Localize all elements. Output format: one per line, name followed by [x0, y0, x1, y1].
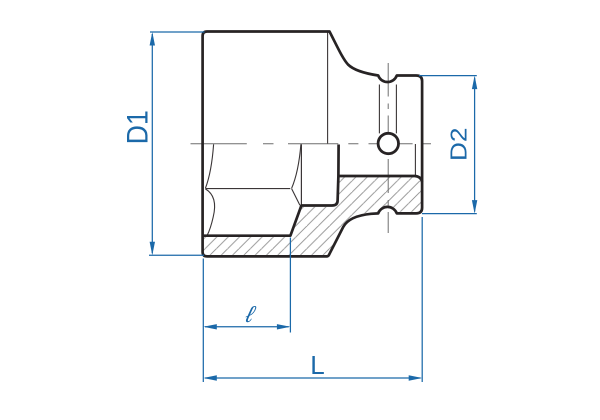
svg-text:ℓ: ℓ — [242, 301, 258, 327]
svg-text:L: L — [310, 350, 324, 380]
svg-text:D1: D1 — [121, 110, 154, 144]
svg-text:D2: D2 — [445, 128, 471, 162]
